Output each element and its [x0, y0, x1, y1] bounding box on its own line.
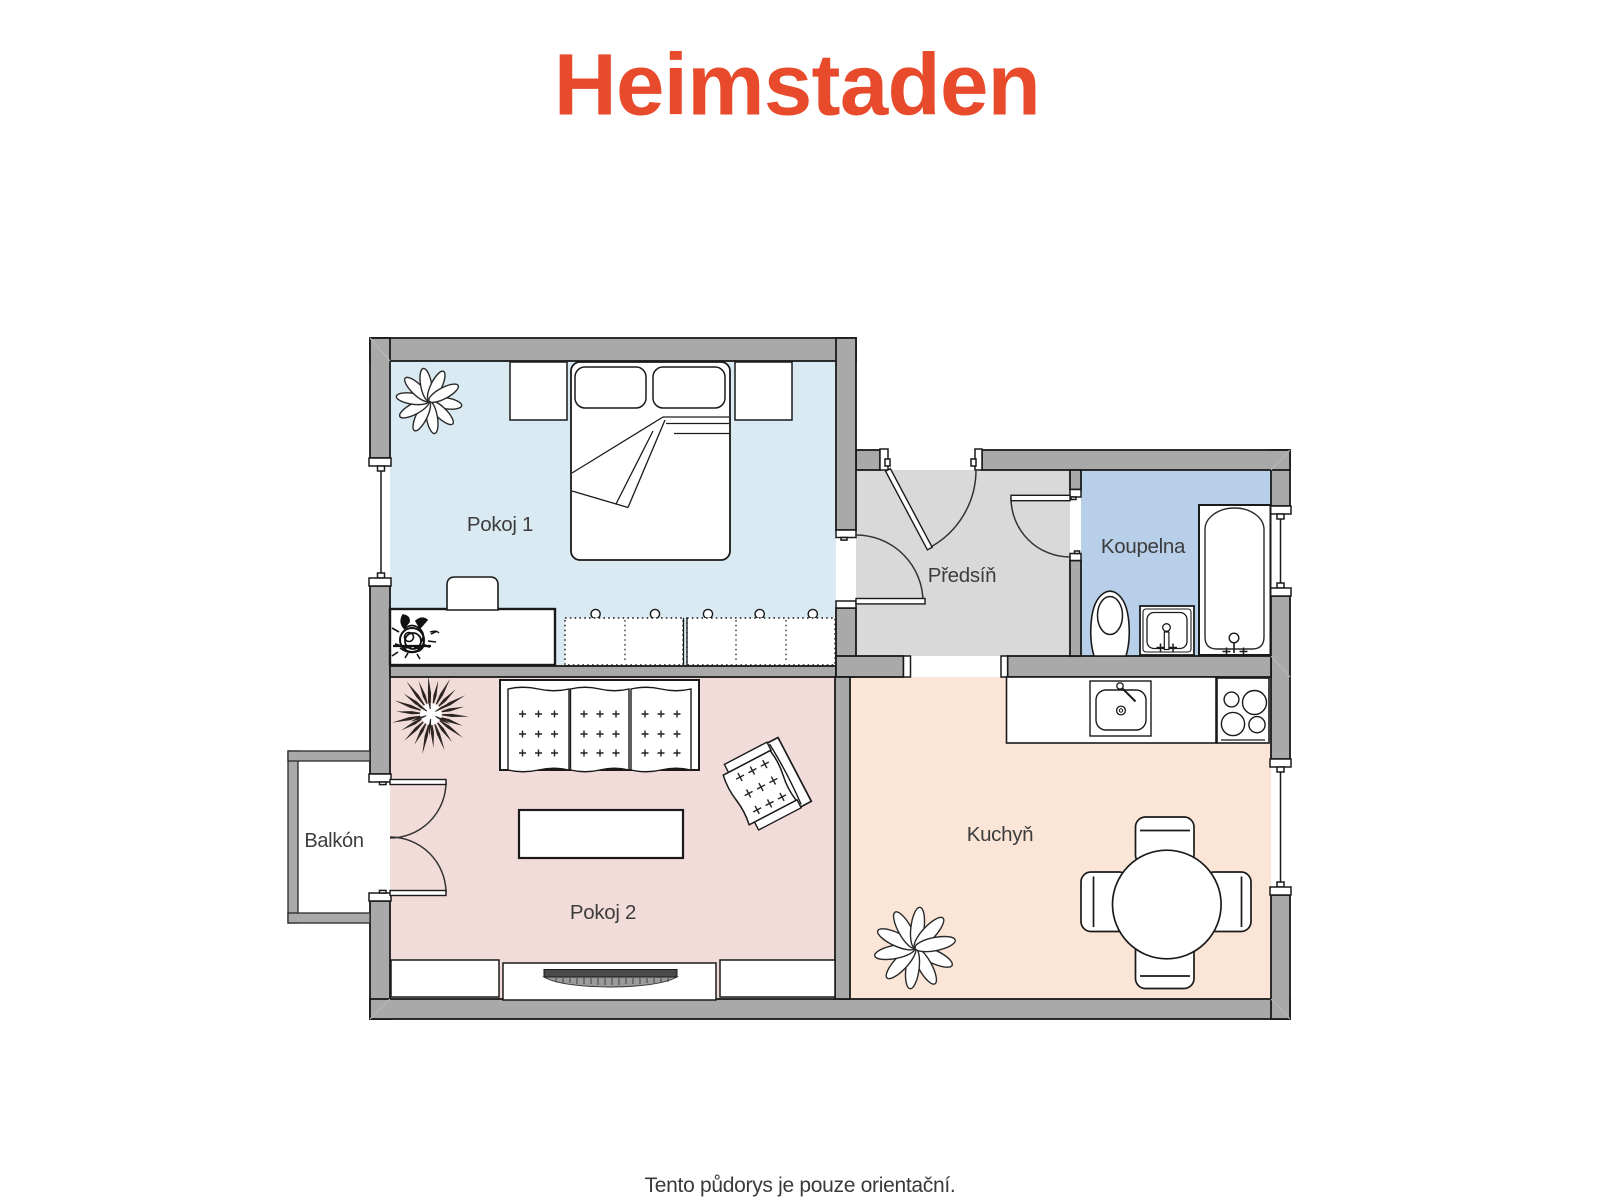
svg-text:Heimstaden: Heimstaden	[554, 37, 1040, 134]
svg-text:Koupelna: Koupelna	[1101, 535, 1186, 558]
svg-text:Pokoj 2: Pokoj 2	[570, 901, 636, 924]
svg-text:Balkón: Balkón	[304, 830, 363, 852]
svg-text:Kuchyň: Kuchyň	[967, 823, 1034, 846]
svg-text:Předsíň: Předsíň	[928, 564, 997, 587]
svg-text:Pokoj 1: Pokoj 1	[467, 513, 533, 536]
svg-text:Tento půdorys je pouze orienta: Tento půdorys je pouze orientační.	[645, 1174, 956, 1197]
